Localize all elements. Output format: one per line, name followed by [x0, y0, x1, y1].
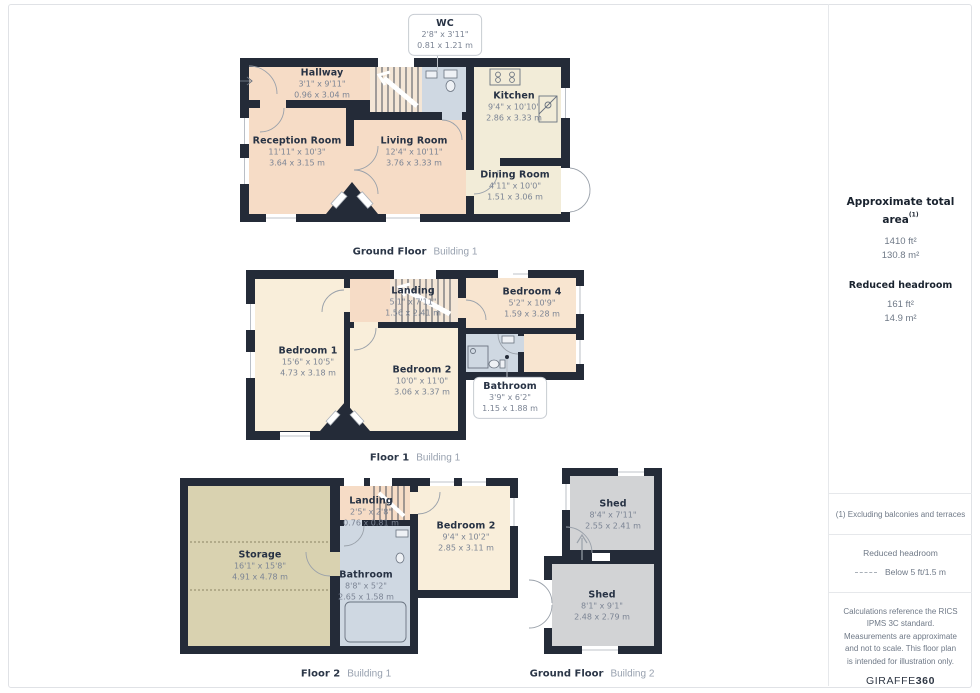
sidebar-area-section: Approximate total area(1) 1410 ft² 130.8…	[829, 4, 972, 493]
room-label-landing-f2: Landing 2'5" x 2'8" 0.76 x 0.81 m	[343, 495, 399, 528]
reduced-headroom-metric: 14.9 m²	[829, 312, 972, 326]
floor-caption-ground-b2: Ground FloorBuilding 2	[530, 662, 655, 681]
floor-caption-ground-b1: Ground FloorBuilding 1	[353, 240, 478, 259]
info-sidebar: Approximate total area(1) 1410 ft² 130.8…	[828, 4, 972, 686]
legend-value: Below 5 ft/1.5 m	[885, 567, 946, 577]
footnote-text: (1) Excluding balconies and terraces	[836, 510, 965, 519]
room-label-kitchen: Kitchen 9'4" x 10'10" 2.86 x 3.33 m	[486, 90, 542, 123]
room-label-hallway: Hallway 3'1" x 9'11" 0.96 x 3.04 m	[294, 67, 350, 100]
wc-callout: WC 2'8" x 3'11" 0.81 x 1.21 m	[408, 14, 482, 56]
room-label-bedroom-2-f2: Bedroom 2 9'4" x 10'2" 2.85 x 3.11 m	[437, 520, 496, 553]
floorplan-ground-floor-building-2-svg	[524, 462, 670, 662]
floorplan-sheet: { "plans": [ { "floor_label": "Ground Fl…	[0, 0, 980, 693]
basin-icon	[502, 336, 514, 343]
reduced-headroom-title: Reduced headroom	[829, 280, 972, 291]
floor-caption-floor1-b1: Floor 1Building 1	[370, 446, 460, 465]
sidebar-legend-section: Reduced headroom Below 5 ft/1.5 m	[829, 534, 972, 592]
total-area-metric: 130.8 m²	[829, 249, 972, 263]
bathroom-callout: Bathroom 3'9" x 6'2" 1.15 x 1.88 m	[473, 377, 547, 419]
room-dims-metric: 0.81 x 1.21 m	[417, 40, 473, 51]
basin-icon	[396, 530, 408, 537]
reduced-headroom-imperial: 161 ft²	[829, 298, 972, 312]
giraffe360-logo: GIRAFFE360	[829, 675, 972, 687]
footnote-marker: (1)	[909, 212, 919, 219]
leader-dot	[505, 355, 509, 359]
room-label-bedroom-4: Bedroom 4 5'2" x 10'9" 1.59 x 3.28 m	[503, 286, 562, 319]
room-name: Bathroom	[482, 381, 538, 392]
room-dims-imperial: 3'9" x 6'2"	[482, 392, 538, 403]
room-dims-metric: 1.15 x 1.88 m	[482, 403, 538, 414]
wc-callout-leader	[437, 56, 438, 72]
room-label-storage: Storage 16'1" x 15'8" 4.91 x 4.78 m	[232, 549, 288, 582]
basin-icon	[426, 71, 437, 78]
room-dims-imperial: 2'8" x 3'11"	[417, 29, 473, 40]
room-label-bedroom-1: Bedroom 1 15'6" x 10'5" 4.73 x 3.18 m	[279, 345, 338, 378]
room-label-shed-1: Shed 8'4" x 7'11" 2.55 x 2.41 m	[585, 498, 641, 531]
floor-caption-floor2-b1: Floor 2Building 1	[301, 662, 391, 681]
disclaimer-text: Calculations reference the RICS IPMS 3C …	[829, 593, 972, 668]
room-label-landing-f1: Landing 5'1" x 7'11" 1.56 x 2.41 m	[385, 285, 441, 318]
room-label-bathroom-f2: Bathroom 8'8" x 5'2" 2.65 x 1.58 m	[338, 569, 394, 602]
sidebar-disclaimer-section: Calculations reference the RICS IPMS 3C …	[829, 592, 972, 686]
room-label-shed-2: Shed 8'1" x 9'1" 2.48 x 2.79 m	[574, 589, 630, 622]
room-label-bedroom-2-f1: Bedroom 2 10'0" x 11'0" 3.06 x 3.37 m	[393, 364, 452, 397]
toilet-icon	[396, 553, 404, 563]
toilet-icon	[489, 360, 505, 368]
sidebar-footnote-section: (1) Excluding balconies and terraces	[829, 493, 972, 534]
room-label-living: Living Room 12'4" x 10'11" 3.76 x 3.33 m	[381, 135, 448, 168]
room-label-reception: Reception Room 11'11" x 10'3" 3.64 x 3.1…	[253, 135, 342, 168]
floorplan-ground-floor-building-2	[524, 462, 670, 662]
room-label-dining: Dining Room 4'11" x 10'0" 1.51 x 3.06 m	[480, 169, 549, 202]
total-area-imperial: 1410 ft²	[829, 235, 972, 249]
dashed-line-icon	[855, 572, 877, 573]
legend-title: Reduced headroom	[829, 548, 972, 558]
french-doors	[570, 168, 590, 212]
total-area-title: Approximate total area(1)	[829, 192, 972, 228]
room-name: WC	[417, 18, 473, 29]
